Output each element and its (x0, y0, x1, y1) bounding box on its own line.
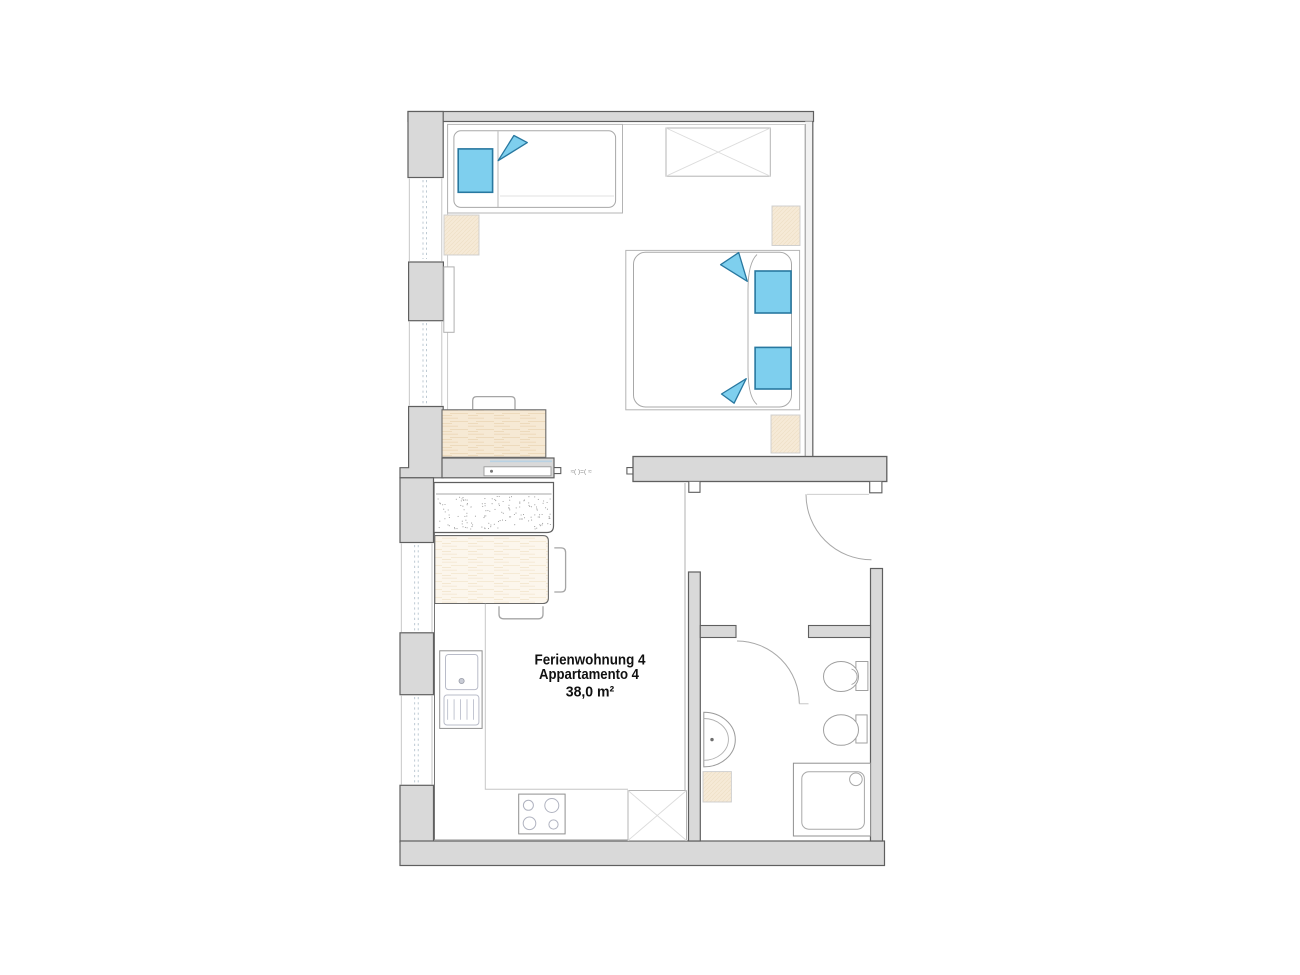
svg-text:≈( )=( ≈: ≈( )=( ≈ (570, 469, 591, 476)
svg-text:38,0 m²: 38,0 m² (566, 684, 615, 701)
svg-text:Appartamento 4: Appartamento 4 (539, 666, 639, 683)
